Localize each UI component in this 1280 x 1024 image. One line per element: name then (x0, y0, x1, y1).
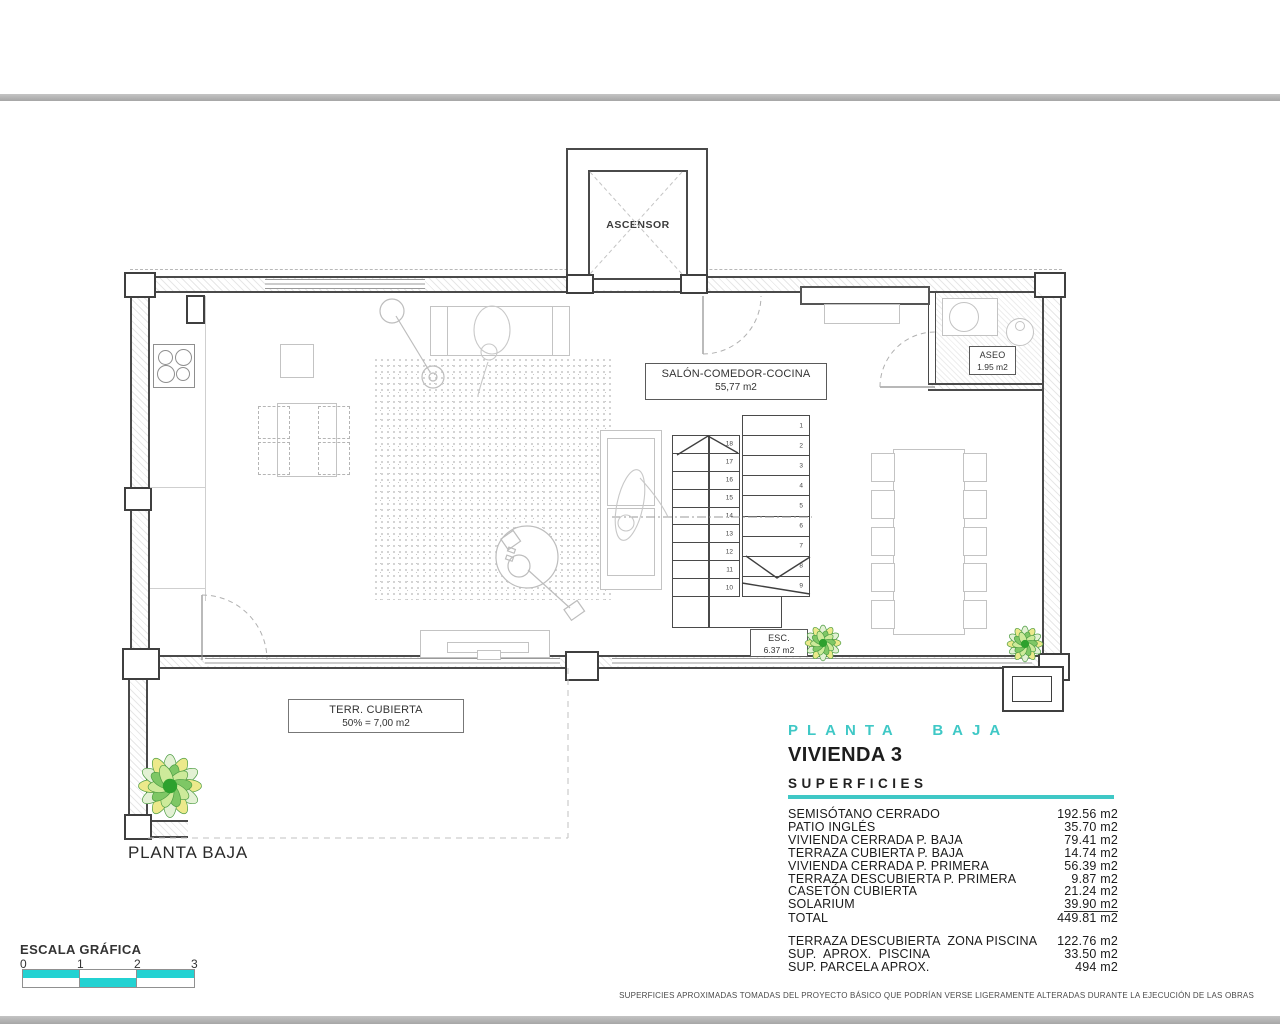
surface-label: SUP. PARCELA APROX. (788, 961, 930, 974)
scale-segment (80, 970, 137, 978)
chair (318, 406, 350, 439)
scale-segment (80, 978, 137, 987)
surface-row: PATIO INGLÉS35.70 m2 (788, 821, 1118, 834)
panel-floor-title: PLANTA BAJA (788, 722, 1118, 739)
floor-lamp-icon (380, 299, 444, 388)
panel-section-title: SUPERFICIES (788, 776, 1118, 791)
terrace-dashed-boundary (148, 668, 568, 838)
plant-icon (805, 625, 841, 661)
chair (871, 563, 895, 592)
surface-label: VIVIENDA CERRADA P. PRIMERA (788, 860, 989, 873)
chair (871, 527, 895, 556)
chair (963, 527, 987, 556)
plant-icon (1007, 626, 1043, 662)
surface-value: 192.56 m2 (1057, 808, 1118, 821)
surface-row: SEMISÓTANO CERRADO192.56 m2 (788, 808, 1118, 821)
person-figure (610, 467, 668, 543)
graphic-scale: ESCALA GRÁFICA 0123 (20, 942, 220, 988)
disclaimer-text: SUPERFICIES APROXIMADAS TOMADAS DEL PROY… (619, 991, 1254, 1000)
scale-title: ESCALA GRÁFICA (20, 942, 220, 957)
chair (963, 453, 987, 482)
chair (963, 600, 987, 629)
chair (871, 600, 895, 629)
chair (318, 442, 350, 475)
scale-segment (137, 970, 194, 978)
surface-label: TOTAL (788, 912, 828, 925)
info-panel: PLANTA BAJA VIVIENDA 3 SUPERFICIES SEMIS… (788, 722, 1118, 974)
surfaces-extra-table: TERRAZA DESCUBIERTA ZONA PISCINA122.76 m… (788, 935, 1118, 974)
scale-tick: 3 (191, 957, 198, 971)
surface-row: TERRAZA CUBIERTA P. BAJA14.74 m2 (788, 847, 1118, 860)
scale-segment (23, 978, 80, 987)
cyan-rule (788, 795, 1114, 799)
surface-label: VIVIENDA CERRADA P. BAJA (788, 834, 963, 847)
scale-tick: 2 (134, 957, 141, 971)
plant-icon (139, 755, 202, 818)
chair (963, 563, 987, 592)
scale-tick: 1 (77, 957, 84, 971)
surface-row: SOLARIUM39.90 m2 (788, 898, 1118, 912)
scale-segment (23, 970, 80, 978)
surface-value: 56.39 m2 (1064, 860, 1118, 873)
scale-ticks: 0123 (20, 957, 220, 969)
surface-row: TOTAL449.81 m2 (788, 912, 1118, 925)
surface-value: 449.81 m2 (1057, 912, 1118, 925)
door-swing (202, 296, 935, 660)
surface-value: 39.90 m2 (1064, 898, 1118, 912)
chair (963, 490, 987, 519)
surface-label: SEMISÓTANO CERRADO (788, 808, 940, 821)
surface-label: SOLARIUM (788, 898, 855, 912)
surface-value: 79.41 m2 (1064, 834, 1118, 847)
chair (258, 406, 290, 439)
surface-label: TERRAZA CUBIERTA P. BAJA (788, 847, 964, 860)
chair (871, 490, 895, 519)
panel-unit-title: VIVIENDA 3 (788, 744, 1118, 767)
scale-bar-strip (22, 969, 195, 988)
surface-row: SUP. PARCELA APROX.494 m2 (788, 961, 1118, 974)
chair (258, 442, 290, 475)
surface-row: VIVIENDA CERRADA P. BAJA79.41 m2 (788, 834, 1118, 847)
chair (871, 453, 895, 482)
round-chair-icon (496, 526, 585, 620)
elevator-cross (590, 172, 682, 274)
stair-break-lines (677, 436, 810, 594)
surface-label: PATIO INGLÉS (788, 821, 875, 834)
surface-value: 14.74 m2 (1064, 847, 1118, 860)
person-figure (474, 306, 510, 395)
scale-tick: 0 (20, 957, 27, 971)
surface-row: VIVIENDA CERRADA P. PRIMERA56.39 m2 (788, 860, 1118, 873)
surface-value: 494 m2 (1075, 961, 1118, 974)
surfaces-table: SEMISÓTANO CERRADO192.56 m2PATIO INGLÉS3… (788, 808, 1118, 925)
scale-segment (137, 978, 194, 987)
surface-value: 35.70 m2 (1064, 821, 1118, 834)
